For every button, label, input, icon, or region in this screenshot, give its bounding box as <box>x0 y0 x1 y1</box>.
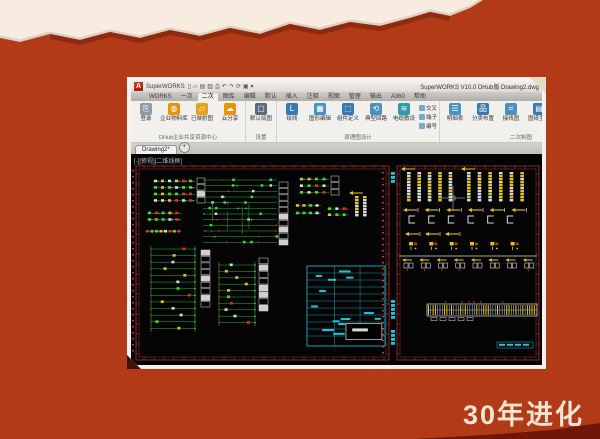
ribbon-button-接线图[interactable]: ⌗接线图 <box>498 102 524 122</box>
ribbon-button-label: 典型回路 <box>365 116 387 122</box>
document-title: SuperWORKS V10.0 DHub版 Drawing2.dwg <box>420 82 539 91</box>
ribbon-small-label: 端子 <box>426 113 437 121</box>
默认绘图-icon: ▢ <box>255 103 267 115</box>
dropdown-icon[interactable]: ▾ <box>251 84 254 90</box>
slide-caption: 30年进化 <box>463 393 584 432</box>
编号-icon <box>419 123 425 129</box>
ribbon: ⎘登录◍企业物料库▱已映射图☁云分享DHub企业共享资源中心▢默认绘图设置L绘线… <box>131 101 542 143</box>
ribbon-tab-7[interactable]: 注释 <box>303 93 323 101</box>
new-file-icon[interactable]: ▯ <box>188 84 191 90</box>
ribbon-tab-12[interactable]: 帮助 <box>410 93 430 101</box>
ribbon-button-label: 接线图 <box>503 116 520 122</box>
app-title: SuperWORKS <box>146 84 185 90</box>
ribbon-group-label: 原理图设计 <box>279 134 437 142</box>
ribbon-tab-10[interactable]: 输出 <box>366 93 386 101</box>
ribbon-button-典型回路[interactable]: ⟲典型回路 <box>363 102 389 122</box>
ribbon-group-label: DHub企业共享资源中心 <box>133 134 243 142</box>
绘线-icon: L <box>286 103 298 115</box>
presentation-slide: A SuperWORKS ▯▱▤▥⎙↶↷⟳▣▾ SuperWORKS V10.0… <box>0 0 600 439</box>
ribbon-small-button-端子[interactable]: 端子 <box>419 113 437 121</box>
document-tab[interactable]: Drawing2* <box>135 145 177 154</box>
screenshot-wrap: A SuperWORKS ▯▱▤▥⎙↶↷⟳▣▾ SuperWORKS V10.0… <box>127 77 554 377</box>
undo-icon[interactable]: ↶ <box>222 84 227 90</box>
ribbon-button-label: 分类布置 <box>472 116 494 122</box>
分类布置-icon: 品 <box>477 103 489 115</box>
ribbon-button-组件定义[interactable]: ⬚组件定义 <box>335 102 361 122</box>
ribbon-group-label: 设置 <box>248 134 274 142</box>
接线图-icon: ⌗ <box>505 103 517 115</box>
ribbon-small-label: 交叉 <box>426 104 437 112</box>
ribbon-tab-6[interactable]: 插入 <box>282 93 302 101</box>
ribbon-button-绘线[interactable]: L绘线 <box>279 102 305 122</box>
交叉-icon <box>419 105 425 111</box>
cad-screenshot: A SuperWORKS ▯▱▤▥⎙↶↷⟳▣▾ SuperWORKS V10.0… <box>127 77 546 369</box>
ribbon-group-0: ⎘登录◍企业物料库▱已映射图☁云分享DHub企业共享资源中心 <box>131 101 246 142</box>
ribbon-button-电缆敷设[interactable]: ≋电缆敷设 <box>391 102 417 122</box>
title-bar: A SuperWORKS ▯▱▤▥⎙↶↷⟳▣▾ SuperWORKS V10.0… <box>131 81 542 92</box>
典型回路-icon: ⟲ <box>370 103 382 115</box>
cad-window: A SuperWORKS ▯▱▤▥⎙↶↷⟳▣▾ SuperWORKS V10.0… <box>131 81 542 365</box>
ribbon-button-label: 图形编辑 <box>309 116 331 122</box>
ribbon-small-label: 编号 <box>426 122 437 130</box>
登录-icon: ⎘ <box>140 103 152 115</box>
ribbon-tab-9[interactable]: 管理 <box>345 93 365 101</box>
ribbon-small-button-交叉[interactable]: 交叉 <box>419 104 437 112</box>
save-as-icon[interactable]: ▥ <box>207 84 213 90</box>
new-document-tab-button[interactable]: + <box>179 142 190 153</box>
电缆敷设-icon: ≋ <box>398 103 410 115</box>
ribbon-button-label: 企业物料库 <box>160 116 188 122</box>
cad-drawing <box>131 154 542 365</box>
ribbon-button-分类布置[interactable]: 品分类布置 <box>470 102 496 122</box>
ribbon-tab-2[interactable]: 二次 <box>198 93 218 101</box>
ribbon-tab-strip: WORKS一次二次图库编辑默认插入注释视图管理输出A360帮助 <box>131 92 542 101</box>
drawing-canvas[interactable]: [-][俯视][二维线框] <box>131 154 542 365</box>
ribbon-tab-0[interactable]: WORKS <box>145 93 176 101</box>
已映射图-icon: ▱ <box>196 103 208 115</box>
ribbon-button-默认绘图[interactable]: ▢默认绘图 <box>248 102 274 122</box>
ribbon-button-登录[interactable]: ⎘登录 <box>133 102 159 122</box>
ribbon-tab-5[interactable]: 默认 <box>261 93 281 101</box>
明细表-icon: ☰ <box>449 103 461 115</box>
ribbon-button-云分享[interactable]: ☁云分享 <box>217 102 243 122</box>
云分享-icon: ☁ <box>224 103 236 115</box>
ribbon-tab-8[interactable]: 视图 <box>324 93 344 101</box>
ribbon-button-label: 已映射图 <box>191 116 213 122</box>
quick-access-toolbar: ▯▱▤▥⎙↶↷⟳▣▾ <box>188 84 254 90</box>
save-icon[interactable]: ▤ <box>200 84 206 90</box>
组件定义-icon: ⬚ <box>342 103 354 115</box>
ribbon-tab-11[interactable]: A360 <box>387 93 409 101</box>
ribbon-small-button-编号[interactable]: 编号 <box>419 122 437 130</box>
ribbon-group-3: ☰明细表品分类布置⌗接线图▤图纸生成▦标注表表格导出设置二次制图 <box>440 101 542 142</box>
图形编辑-icon: ▦ <box>314 103 326 115</box>
ribbon-button-图纸生成[interactable]: ▤图纸生成 <box>526 102 542 122</box>
ribbon-small-buttons: 交叉端子编号 <box>419 102 437 130</box>
企业物料库-icon: ◍ <box>168 103 180 115</box>
图纸生成-icon: ▤ <box>533 103 542 115</box>
open-icon[interactable]: ▱ <box>193 84 198 90</box>
ribbon-button-图形编辑[interactable]: ▦图形编辑 <box>307 102 333 122</box>
ribbon-button-label: 登录 <box>140 116 151 122</box>
ribbon-group-label: 二次制图 <box>442 134 542 142</box>
ribbon-button-label: 组件定义 <box>337 116 359 122</box>
ribbon-button-企业物料库[interactable]: ◍企业物料库 <box>161 102 187 122</box>
ribbon-button-label: 电缆敷设 <box>393 116 415 122</box>
ribbon-tab-4[interactable]: 编辑 <box>240 93 260 101</box>
ribbon-button-已映射图[interactable]: ▱已映射图 <box>189 102 215 122</box>
端子-icon <box>419 114 425 120</box>
ribbon-group-1: ▢默认绘图设置 <box>246 101 277 142</box>
ribbon-group-2: L绘线▦图形编辑⬚组件定义⟲典型回路≋电缆敷设交叉端子编号原理图设计 <box>277 101 440 142</box>
plot-icon[interactable]: ⎙ <box>215 84 220 90</box>
app-logo-icon[interactable]: A <box>134 82 143 91</box>
viewport-controls[interactable]: [-][俯视][二维线框] <box>134 156 182 165</box>
refresh-icon[interactable]: ⟳ <box>236 84 241 90</box>
redo-icon[interactable]: ↷ <box>229 84 234 90</box>
workspace-icon[interactable]: ▣ <box>243 84 249 90</box>
ribbon-button-label: 绘线 <box>286 116 297 122</box>
torn-paper-top <box>0 0 600 62</box>
ribbon-button-label: 云分享 <box>222 116 239 122</box>
ribbon-button-明细表[interactable]: ☰明细表 <box>442 102 468 122</box>
ribbon-button-label: 图纸生成 <box>528 116 542 122</box>
ribbon-tab-1[interactable]: 一次 <box>177 93 197 101</box>
ribbon-button-label: 明细表 <box>447 116 464 122</box>
ribbon-tab-3[interactable]: 图库 <box>219 93 239 101</box>
ribbon-button-label: 默认绘图 <box>250 116 272 122</box>
document-tab-bar: Drawing2* + <box>131 143 542 154</box>
